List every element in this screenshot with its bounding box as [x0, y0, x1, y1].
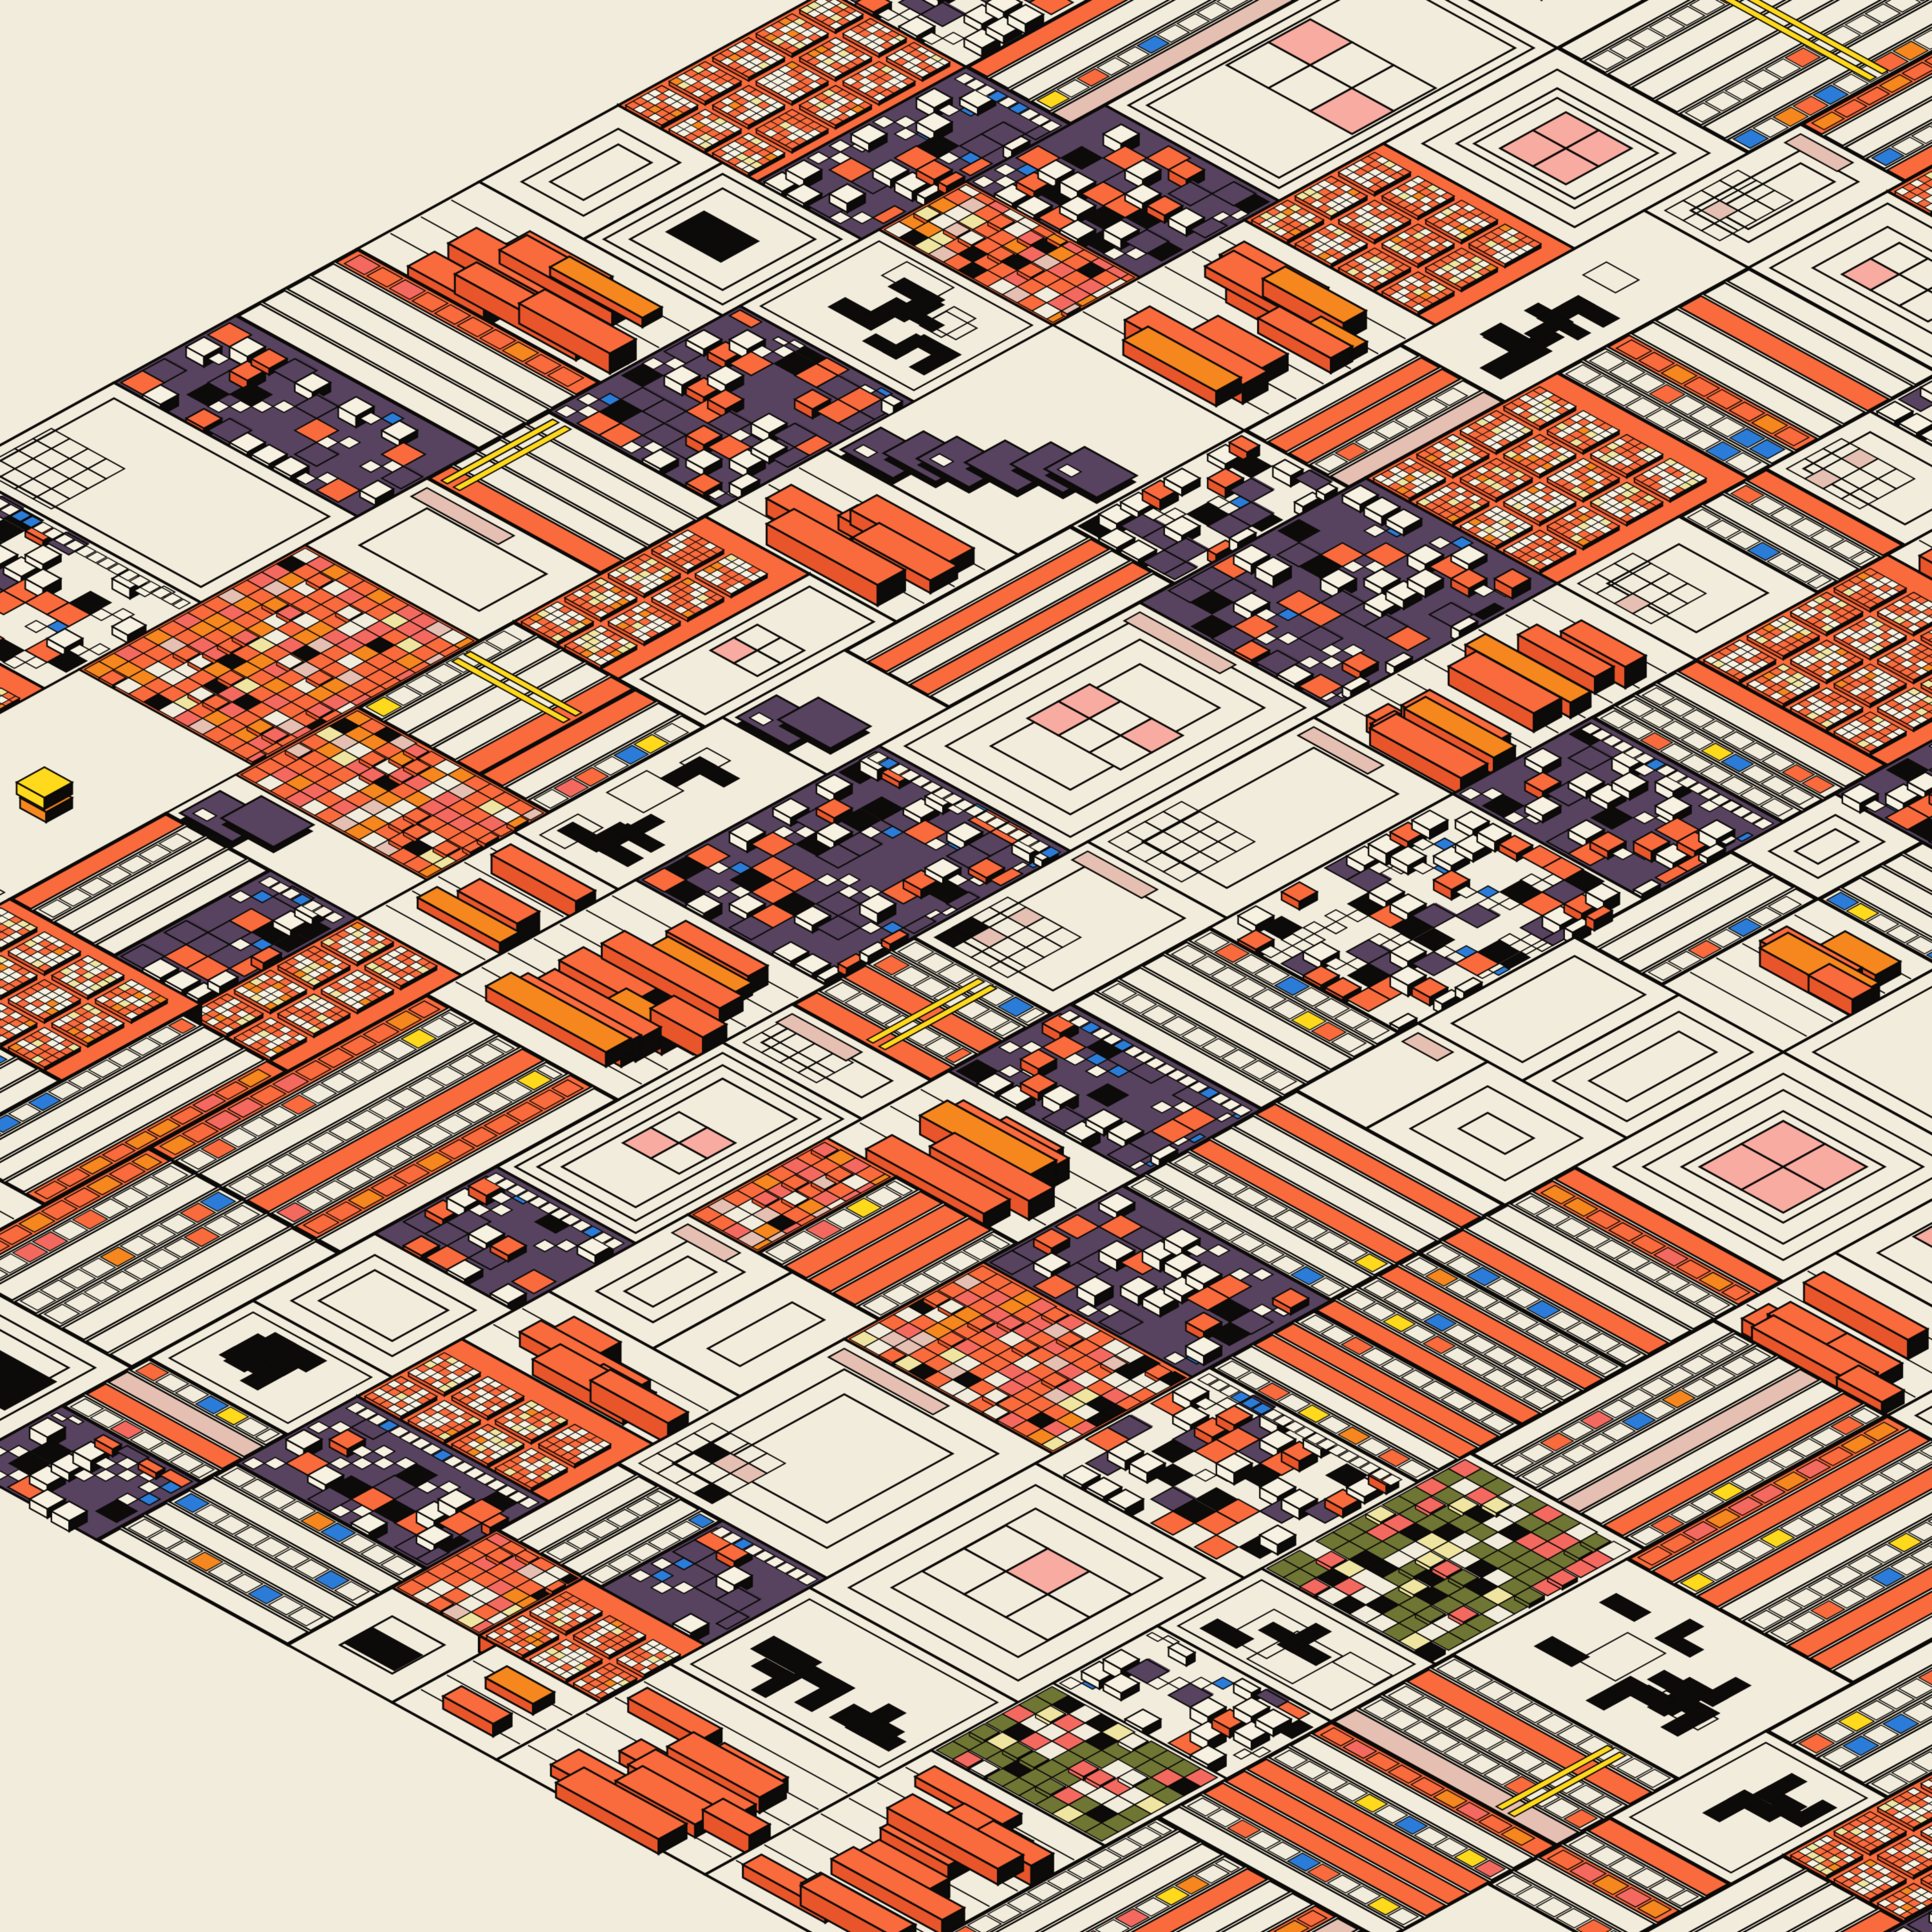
generative-artwork: [0, 0, 1932, 1932]
isometric-cityscape-canvas: [0, 0, 1932, 1932]
